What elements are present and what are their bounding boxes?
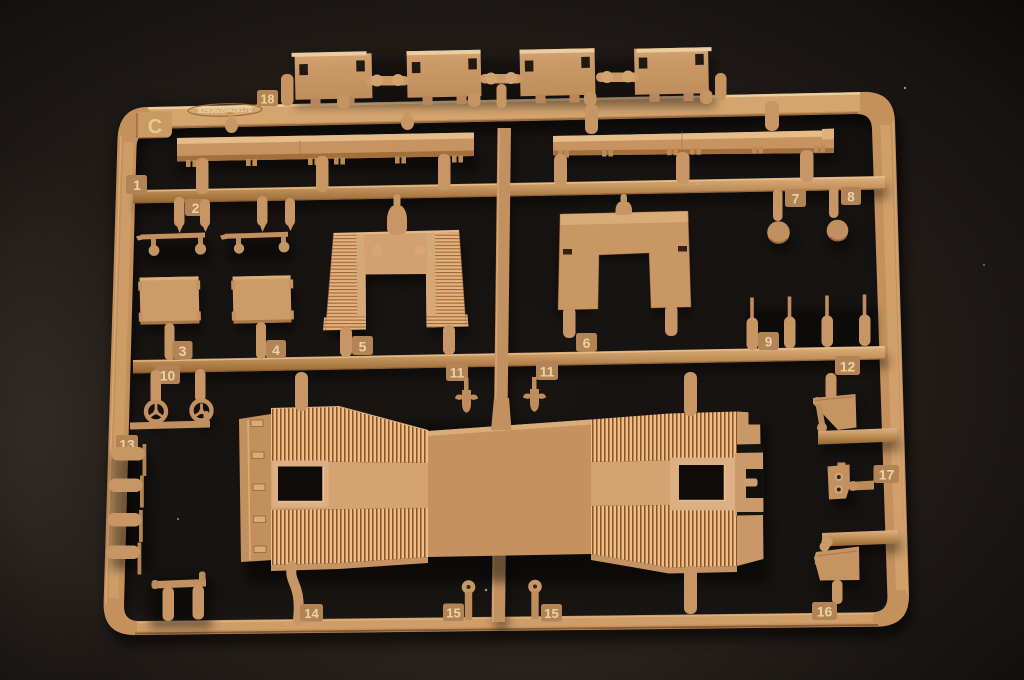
svg-text:5: 5 [359,339,367,355]
svg-text:3: 3 [179,343,187,359]
svg-text:11: 11 [540,364,555,380]
svg-text:1: 1 [133,177,141,193]
svg-text:18: 18 [261,93,275,107]
svg-text:17: 17 [879,467,895,483]
svg-text:11: 11 [450,365,465,381]
svg-text:9: 9 [765,335,773,350]
svg-text:8: 8 [847,190,855,205]
svg-text:15: 15 [544,606,558,621]
svg-text:82936/20829170: 82936/20829170 [198,105,252,115]
svg-text:C: C [148,116,163,138]
svg-text:10: 10 [160,368,176,384]
svg-text:15: 15 [446,606,460,621]
svg-text:16: 16 [817,604,833,620]
svg-text:6: 6 [583,335,591,351]
svg-text:7: 7 [792,192,800,207]
svg-text:14: 14 [304,606,319,621]
svg-text:4: 4 [272,342,280,358]
svg-text:2: 2 [192,200,200,216]
svg-text:12: 12 [840,359,856,375]
